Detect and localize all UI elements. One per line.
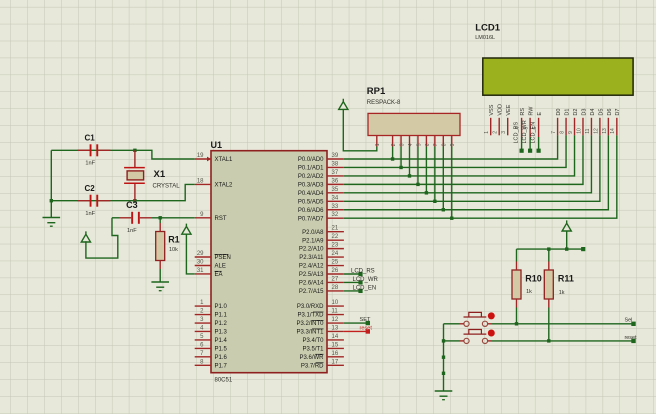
- svg-text:D2: D2: [573, 109, 579, 116]
- svg-text:33: 33: [332, 204, 339, 210]
- svg-text:P0.3/AD3: P0.3/AD3: [298, 182, 324, 188]
- svg-text:6: 6: [425, 143, 431, 146]
- svg-text:3: 3: [501, 131, 507, 134]
- svg-text:CRYSTAL: CRYSTAL: [153, 184, 181, 190]
- svg-text:10k: 10k: [169, 247, 178, 253]
- svg-text:P1.4: P1.4: [215, 338, 228, 344]
- svg-text:39: 39: [332, 153, 339, 159]
- svg-text:1nF: 1nF: [85, 161, 95, 167]
- svg-text:E: E: [537, 112, 543, 116]
- svg-text:P2.7/A15: P2.7/A15: [299, 289, 324, 295]
- svg-text:P1.2: P1.2: [215, 321, 228, 327]
- svg-text:13: 13: [602, 128, 608, 134]
- svg-text:D7: D7: [615, 109, 621, 116]
- svg-text:2: 2: [391, 143, 397, 146]
- svg-text:D6: D6: [607, 109, 613, 116]
- svg-text:36: 36: [332, 178, 339, 184]
- svg-text:U1: U1: [211, 140, 223, 150]
- svg-text:C3: C3: [126, 200, 138, 210]
- svg-text:VEE: VEE: [506, 104, 512, 115]
- svg-text:30: 30: [197, 260, 204, 266]
- svg-text:P0.2/AD2: P0.2/AD2: [298, 174, 324, 180]
- svg-text:P2.6/A14: P2.6/A14: [299, 281, 324, 287]
- svg-text:14: 14: [610, 128, 616, 134]
- svg-text:LM016L: LM016L: [475, 35, 495, 41]
- svg-text:RP1: RP1: [367, 86, 386, 97]
- svg-text:1: 1: [484, 131, 490, 134]
- svg-text:37: 37: [332, 170, 339, 176]
- svg-text:P0.7/AD7: P0.7/AD7: [298, 216, 324, 222]
- svg-text:RS: RS: [520, 108, 526, 116]
- svg-text:P3.2/INT0: P3.2/INT0: [296, 321, 324, 327]
- svg-text:11: 11: [332, 309, 339, 315]
- svg-text:R11: R11: [558, 274, 574, 284]
- svg-text:P1.1: P1.1: [215, 313, 228, 319]
- svg-text:5: 5: [416, 143, 422, 146]
- svg-text:RST: RST: [215, 216, 227, 222]
- svg-text:P3.5/T1: P3.5/T1: [302, 347, 324, 353]
- svg-text:10: 10: [576, 128, 582, 134]
- svg-text:D4: D4: [590, 109, 596, 116]
- svg-text:P2.2/A10: P2.2/A10: [299, 247, 324, 253]
- svg-text:32: 32: [332, 212, 339, 218]
- svg-text:P0.0/AD0: P0.0/AD0: [298, 157, 324, 163]
- svg-text:D0: D0: [556, 109, 562, 116]
- svg-text:1nF: 1nF: [127, 228, 137, 234]
- svg-text:19: 19: [197, 153, 204, 159]
- svg-text:LCD_EN: LCD_EN: [353, 285, 377, 291]
- svg-text:P1.0: P1.0: [215, 304, 228, 310]
- svg-text:LCD_EN: LCD_EN: [530, 122, 536, 144]
- svg-text:10: 10: [332, 300, 339, 306]
- svg-text:4: 4: [408, 143, 414, 146]
- svg-text:C1: C1: [85, 134, 96, 143]
- svg-text:P0.6/AD6: P0.6/AD6: [298, 208, 324, 214]
- svg-text:17: 17: [332, 359, 339, 365]
- svg-text:LCD_RS: LCD_RS: [513, 121, 519, 143]
- svg-text:P3.7/RD: P3.7/RD: [301, 363, 324, 369]
- svg-text:13: 13: [332, 325, 339, 331]
- svg-text:18: 18: [197, 178, 204, 184]
- svg-text:8: 8: [559, 131, 565, 134]
- svg-text:3: 3: [399, 143, 405, 146]
- svg-text:reset: reset: [360, 326, 373, 332]
- svg-text:7: 7: [551, 131, 557, 134]
- svg-text:80C51: 80C51: [215, 378, 233, 384]
- svg-text:34: 34: [332, 195, 339, 201]
- svg-text:P1.7: P1.7: [215, 363, 228, 369]
- svg-text:LCD_RS: LCD_RS: [351, 268, 375, 274]
- svg-text:P2.5/A13: P2.5/A13: [299, 272, 324, 278]
- svg-text:P3.6/WR: P3.6/WR: [299, 355, 324, 361]
- svg-text:1nF: 1nF: [85, 211, 95, 217]
- svg-text:16: 16: [332, 351, 339, 357]
- svg-text:VDD: VDD: [498, 104, 504, 116]
- svg-text:C2: C2: [85, 184, 96, 193]
- svg-text:1k: 1k: [559, 290, 565, 296]
- svg-text:15: 15: [332, 342, 339, 348]
- svg-text:LCD1: LCD1: [475, 22, 501, 33]
- svg-text:7: 7: [433, 143, 439, 146]
- svg-text:P2.4/A12: P2.4/A12: [299, 264, 324, 270]
- svg-text:9: 9: [568, 131, 574, 134]
- svg-text:35: 35: [332, 187, 339, 193]
- svg-text:ALE: ALE: [215, 264, 226, 270]
- svg-text:P3.1/TXD: P3.1/TXD: [297, 313, 324, 319]
- svg-text:P0.1/AD1: P0.1/AD1: [298, 166, 324, 172]
- svg-text:12: 12: [332, 317, 339, 323]
- svg-text:23: 23: [332, 243, 339, 249]
- svg-text:R1: R1: [168, 235, 180, 245]
- svg-text:P3.3/INT1: P3.3/INT1: [296, 330, 324, 336]
- svg-text:Sel: Sel: [625, 318, 633, 324]
- svg-text:P0.4/AD4: P0.4/AD4: [298, 191, 324, 197]
- svg-text:reset: reset: [625, 335, 637, 341]
- svg-text:D1: D1: [564, 109, 570, 116]
- svg-text:22: 22: [332, 234, 339, 240]
- svg-text:LCD_WR: LCD_WR: [522, 120, 528, 143]
- svg-text:1: 1: [375, 143, 381, 146]
- svg-text:29: 29: [197, 251, 204, 257]
- svg-text:P3.0/RXD: P3.0/RXD: [297, 304, 324, 310]
- svg-text:1k: 1k: [526, 289, 532, 295]
- svg-text:VSS: VSS: [489, 104, 495, 115]
- svg-text:14: 14: [332, 334, 339, 340]
- svg-text:P3.4/T0: P3.4/T0: [302, 338, 324, 344]
- svg-text:SET: SET: [360, 317, 371, 323]
- svg-text:11: 11: [585, 128, 591, 133]
- svg-text:X1: X1: [154, 169, 166, 180]
- svg-text:D5: D5: [598, 109, 604, 116]
- svg-text:RW: RW: [529, 106, 535, 116]
- svg-text:21: 21: [332, 226, 339, 232]
- svg-text:D3: D3: [581, 109, 587, 116]
- svg-text:27: 27: [332, 276, 339, 282]
- svg-text:8: 8: [442, 143, 448, 146]
- svg-text:28: 28: [332, 285, 339, 291]
- svg-text:P2.0/A8: P2.0/A8: [302, 230, 324, 236]
- svg-text:9: 9: [450, 143, 456, 146]
- svg-text:26: 26: [332, 268, 339, 274]
- svg-text:12: 12: [593, 128, 599, 134]
- svg-text:31: 31: [197, 268, 204, 274]
- svg-text:24: 24: [332, 251, 339, 257]
- svg-text:P2.1/A9: P2.1/A9: [302, 238, 324, 244]
- svg-text:PSEN: PSEN: [215, 255, 231, 261]
- svg-text:P1.6: P1.6: [215, 355, 228, 361]
- svg-text:25: 25: [332, 260, 339, 266]
- svg-text:XTAL1: XTAL1: [215, 157, 234, 163]
- svg-text:R10: R10: [525, 274, 542, 284]
- svg-text:RESPACK-8: RESPACK-8: [367, 100, 401, 106]
- svg-text:EA: EA: [215, 272, 223, 278]
- svg-text:P2.3/A11: P2.3/A11: [299, 255, 324, 261]
- svg-text:P1.3: P1.3: [215, 330, 228, 336]
- svg-text:P1.5: P1.5: [215, 347, 228, 353]
- svg-text:2: 2: [493, 131, 499, 134]
- svg-text:XTAL2: XTAL2: [215, 183, 234, 189]
- svg-text:P0.5/AD5: P0.5/AD5: [298, 199, 324, 205]
- svg-text:LCD_WR: LCD_WR: [353, 277, 379, 283]
- svg-text:38: 38: [332, 161, 339, 167]
